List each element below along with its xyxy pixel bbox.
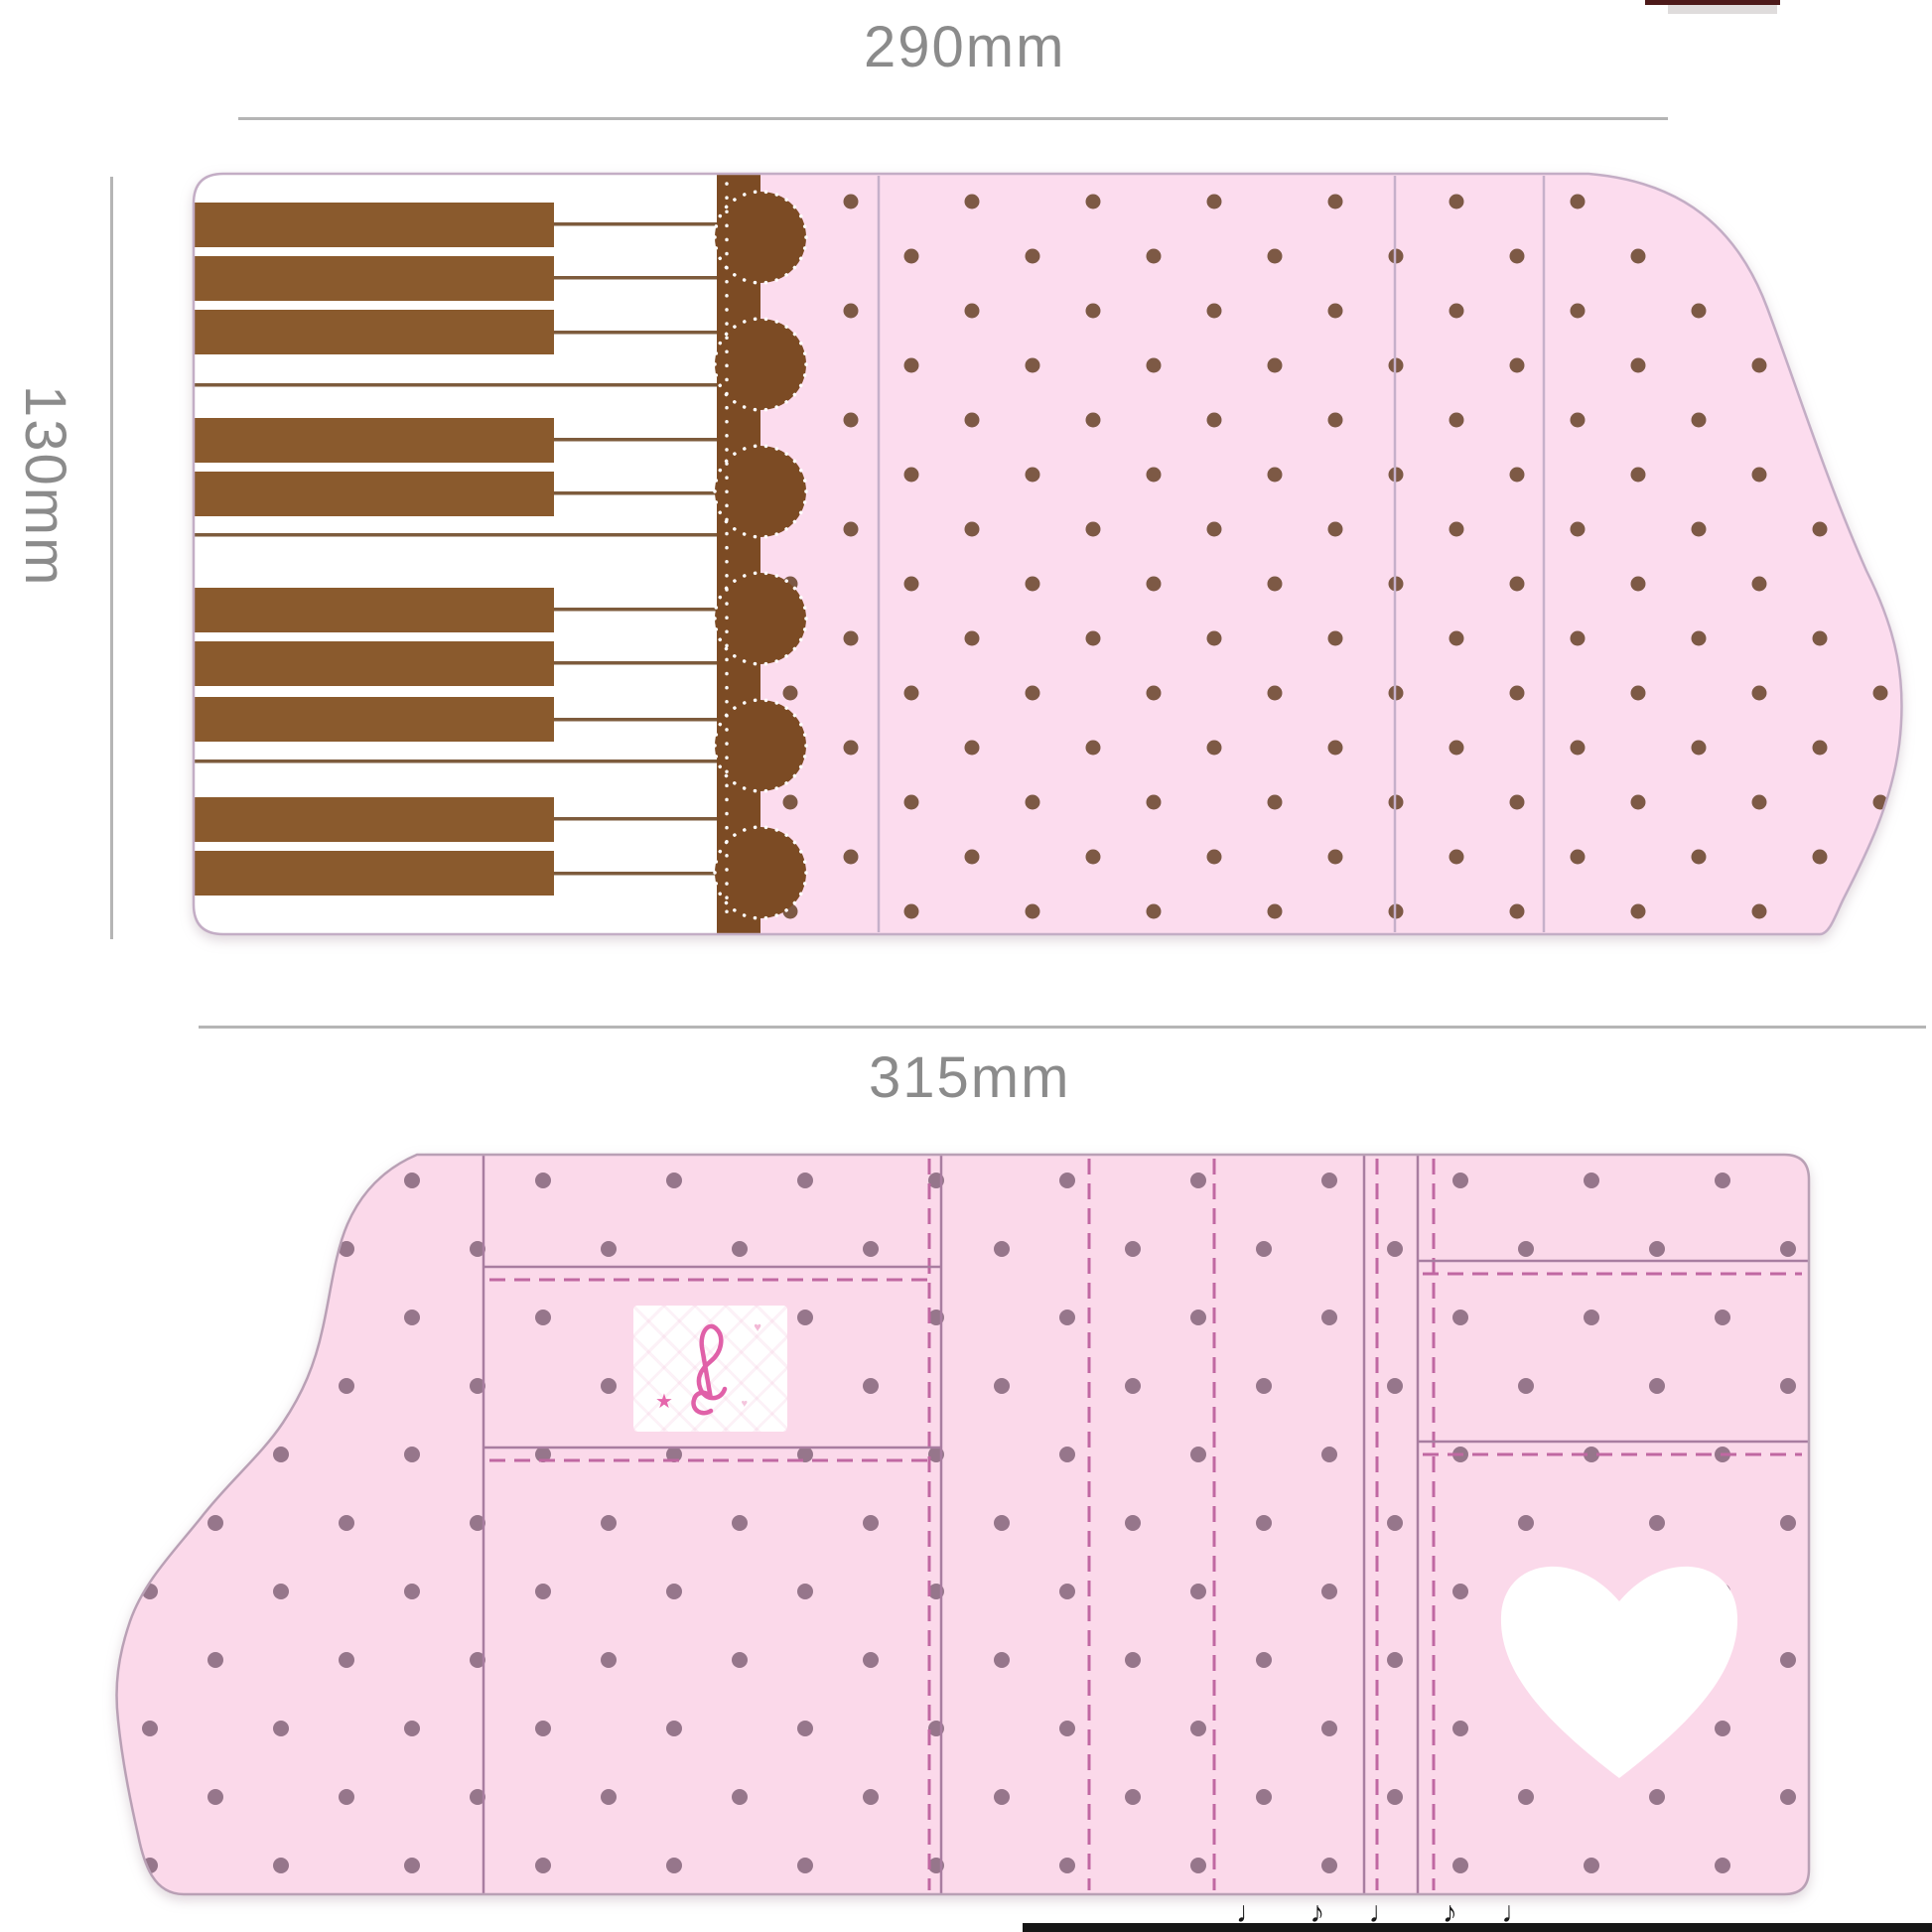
star-icon: ★	[655, 1389, 673, 1414]
wallet-closed-view	[194, 174, 1911, 934]
bottom-width-dimension-label: 315mm	[869, 1044, 1070, 1111]
bottom-cropped-watermark-notes: ♩ ♪ ♩ ♪ ♩	[1236, 1896, 1564, 1924]
bottom-cropped-black-bar	[1023, 1923, 1932, 1932]
left-height-dimension-line	[110, 177, 113, 939]
polka-dot-pattern-bottom	[117, 1155, 1810, 1894]
wallet-open-view	[114, 1155, 1809, 1894]
left-height-dimension-label: 130mm	[12, 385, 78, 587]
mini-heart-icon: ♥	[754, 1319, 761, 1334]
top-width-dimension-line	[238, 117, 1668, 120]
top-right-banner-smudge	[1668, 5, 1777, 14]
treble-clef-patch: ★ ♥ ♥	[633, 1306, 787, 1432]
treble-clef-icon	[681, 1315, 741, 1423]
bottom-width-dimension-line	[199, 1026, 1926, 1029]
top-width-dimension-label: 290mm	[864, 14, 1065, 80]
mini-heart-icon: ♥	[741, 1398, 748, 1410]
diagram-canvas: 290mm 130mm 315mm	[0, 0, 1932, 1932]
